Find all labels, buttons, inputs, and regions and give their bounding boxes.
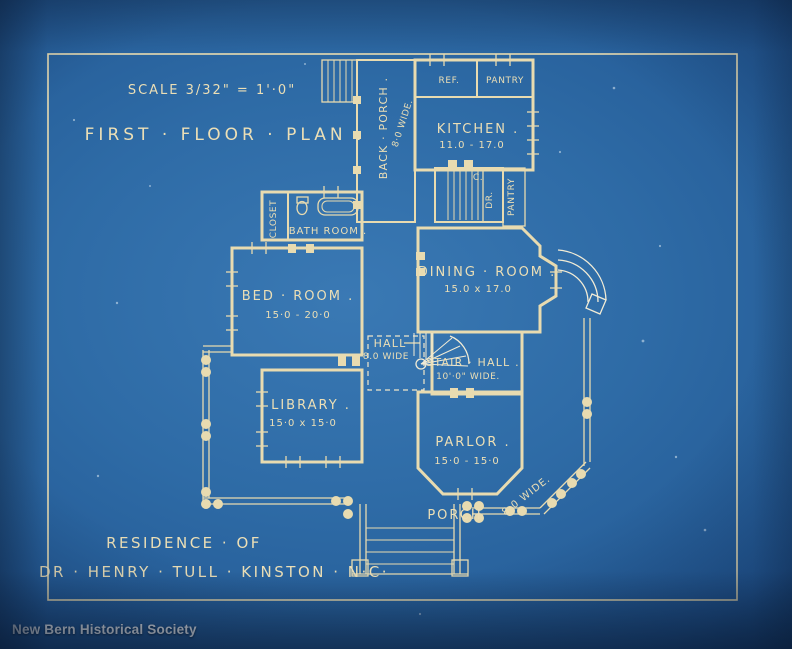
room-label-closet-c: C.: [473, 173, 483, 183]
room-label-parlor: PARLOR .: [435, 435, 510, 450]
dim-label-back-porch: 8·0 WIDE.: [391, 98, 416, 148]
room-label-hall: HALL: [374, 337, 407, 350]
room-label-library: LIBRARY .: [271, 398, 351, 413]
room-kitchen: [415, 54, 539, 171]
steps-back-porch: [322, 60, 357, 102]
dim-label-library: 15·0 x 15·0: [269, 418, 337, 429]
room-label-stair-hall: STAIR · HALL .: [426, 356, 520, 369]
room-label-kitchen: KITCHEN .: [437, 122, 520, 137]
room-label-pantry-side: PANTRY: [507, 178, 517, 216]
dim-label-hall: 8.0 WIDE: [363, 352, 409, 362]
room-label-dining: DINING · ROOM .: [418, 265, 557, 280]
dim-label-dining: 15.0 x 17.0: [444, 284, 512, 295]
residence-line1: RESIDENCE · OF: [106, 534, 262, 552]
room-label-closet: CLOSET: [269, 200, 279, 239]
credit-watermark: New Bern Historical Society: [12, 622, 197, 637]
room-label-dr: DR.: [485, 191, 495, 209]
scale-label: SCALE 3/32" = 1'·0": [128, 83, 296, 98]
dim-label-stair-hall: 10'·0" WIDE.: [436, 372, 500, 382]
steps-side-curved: [558, 250, 606, 314]
dim-label-kitchen: 11.0 - 17.0: [439, 140, 505, 151]
room-label-back-porch: BACK · PORCH .: [377, 77, 390, 179]
room-label-bath: BATH ROOM .: [289, 226, 367, 237]
room-label-ref: REF.: [439, 76, 460, 86]
room-label-pantry-top: PANTRY: [486, 76, 524, 86]
dim-label-bed: 15·0 - 20·0: [265, 310, 331, 321]
residence-line2: DR · HENRY · TULL · KINSTON · N·C·: [39, 563, 389, 581]
floorplan-svg: SCALE 3/32" = 1'·0" FIRST · FLOOR · PLAN…: [0, 0, 792, 649]
room-dining: [416, 228, 562, 332]
room-label-porch: PORCH: [427, 508, 482, 523]
plan-title: FIRST · FLOOR · PLAN .: [85, 125, 366, 145]
dim-label-parlor: 15·0 - 15·0: [434, 456, 500, 467]
blueprint-photo: SCALE 3/32" = 1'·0" FIRST · FLOOR · PLAN…: [0, 0, 792, 649]
room-label-bed: BED · ROOM .: [242, 289, 355, 304]
